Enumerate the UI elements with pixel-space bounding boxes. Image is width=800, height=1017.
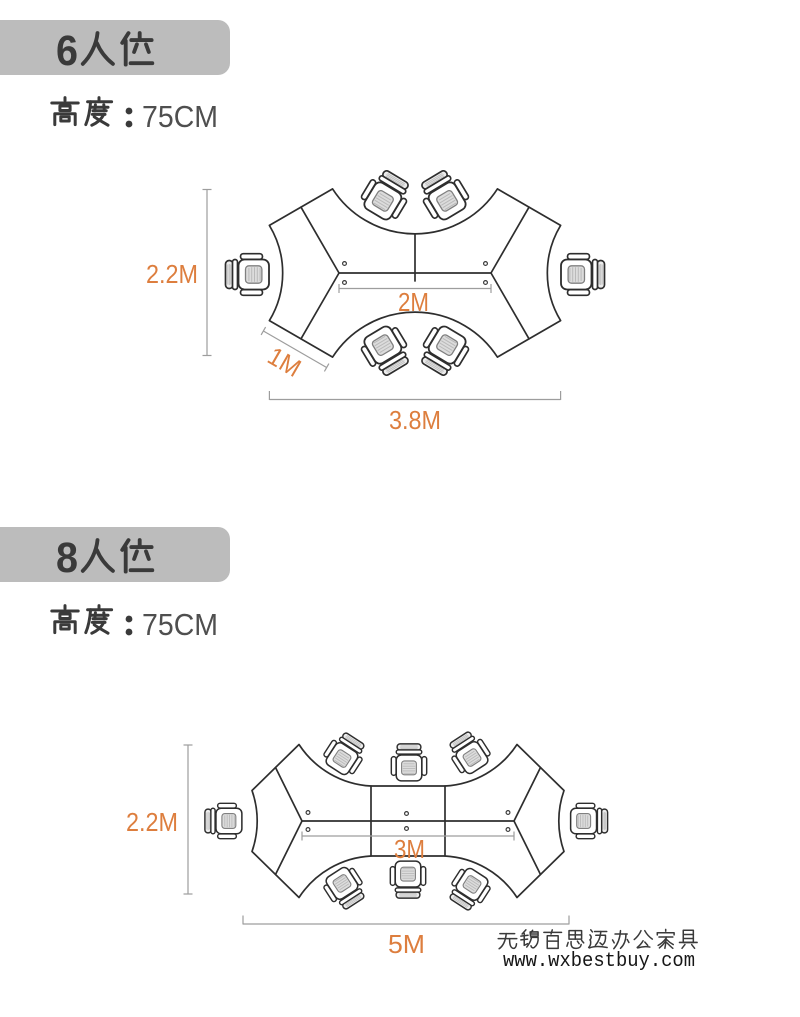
svg-text:3.8M: 3.8M [389,405,441,435]
svg-text:1M: 1M [263,342,306,383]
svg-text:2.2M: 2.2M [146,261,198,289]
svg-text:5M: 5M [388,929,425,959]
svg-text:www.wxbestbuy.com: www.wxbestbuy.com [503,950,695,973]
svg-text:2M: 2M [398,289,429,317]
svg-text:2.2M: 2.2M [126,809,178,837]
svg-text:6: 6 [56,27,78,75]
svg-text:8: 8 [56,534,78,582]
svg-text:75CM: 75CM [142,100,218,134]
svg-text:75CM: 75CM [142,608,218,642]
svg-text:3M: 3M [394,836,425,864]
